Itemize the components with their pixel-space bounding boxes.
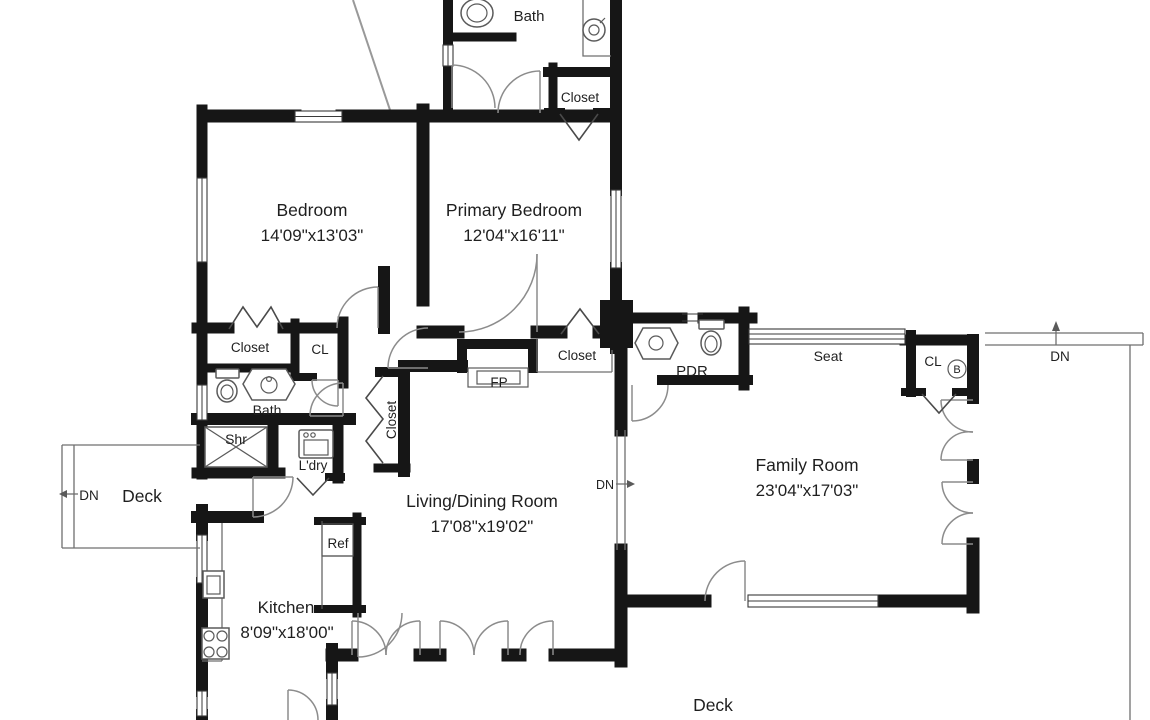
toilet-icon-upper (461, 0, 493, 27)
bifold-family-cl (922, 394, 956, 413)
family-room-dims: 23'04"x17'03" (756, 481, 859, 500)
window-primary-east (611, 190, 621, 268)
sink-icon-upper (583, 18, 605, 41)
dn-living-label: DN (596, 478, 614, 492)
primary-bedroom-label: Primary Bedroom (446, 200, 582, 220)
window-kitchen-west-2 (197, 691, 207, 716)
fireplace-label: FP (490, 375, 507, 390)
bifold-bedroom-closet (229, 307, 283, 329)
kitchen-sink-icon (203, 571, 224, 598)
bifold-hall-closet (366, 376, 383, 463)
window-bedroom-top (295, 111, 342, 122)
closet-bedroom-label: Closet (231, 340, 270, 355)
living-dining-label: Living/Dining Room (406, 491, 558, 511)
fridge-label: Ref (327, 536, 348, 551)
bath-hall-label: Bath (253, 402, 282, 418)
deck-left-label: Deck (122, 486, 162, 506)
floorplan-canvas: Bath Closet Bedroom 14'09"x13'03" Primar… (0, 0, 1150, 720)
living-dining-dims: 17'08"x19'02" (431, 517, 534, 536)
door-primary-entry (459, 254, 537, 332)
toilet-icon-bath (216, 369, 239, 402)
cl-family-b-label: B (953, 364, 960, 376)
pdr-label: PDR (676, 363, 708, 380)
window-family-south (748, 595, 878, 607)
bedroom-dims: 14'09"x13'03" (261, 226, 364, 245)
bath-upper-label: Bath (514, 8, 545, 25)
window-bedroom-west (197, 178, 207, 262)
stove-icon (202, 628, 229, 659)
window-upper-bath (443, 45, 453, 66)
bedroom-label: Bedroom (276, 200, 347, 220)
window-living-southwest (327, 673, 337, 705)
shower-label: Shr (225, 431, 247, 447)
deck-right-outline (985, 333, 1143, 720)
dn-left-label: DN (79, 488, 99, 503)
family-room-label: Family Room (755, 455, 858, 475)
floorplan-svg: Bath Closet Bedroom 14'09"x13'03" Primar… (0, 0, 1150, 720)
fridge-icon (322, 521, 353, 609)
cl-hall-label: CL (311, 342, 329, 357)
closet-hall-tall-label: Closet (384, 401, 399, 440)
closet-living-label: Closet (558, 348, 597, 363)
step-opening-family (617, 430, 625, 550)
pdr-toilet-icon (699, 320, 724, 355)
vanity-sink-icon-bath (243, 369, 295, 400)
washer-icon (299, 430, 333, 458)
kitchen-dims: 8'09"x18'00" (240, 623, 333, 642)
pdr-sink-icon (635, 328, 678, 359)
window-bath-west (197, 385, 207, 420)
door-upper-bath (452, 65, 495, 108)
dn-right-label: DN (1050, 349, 1070, 364)
door-kitchen-south (288, 690, 318, 720)
bifold-laundry (297, 478, 329, 495)
primary-bedroom-dims: 12'04"x16'11" (463, 226, 564, 245)
cl-family-label: CL (924, 354, 942, 369)
roofline (353, 0, 391, 113)
window-seat-band (749, 329, 905, 344)
deck-bottom-label: Deck (693, 695, 733, 715)
seat-label: Seat (814, 348, 843, 364)
door-pdr (632, 385, 668, 421)
door-upper-hall (498, 71, 540, 113)
laundry-label: L'dry (299, 458, 328, 473)
kitchen-label: Kitchen (258, 598, 315, 617)
closet-upper-label: Closet (561, 90, 600, 105)
